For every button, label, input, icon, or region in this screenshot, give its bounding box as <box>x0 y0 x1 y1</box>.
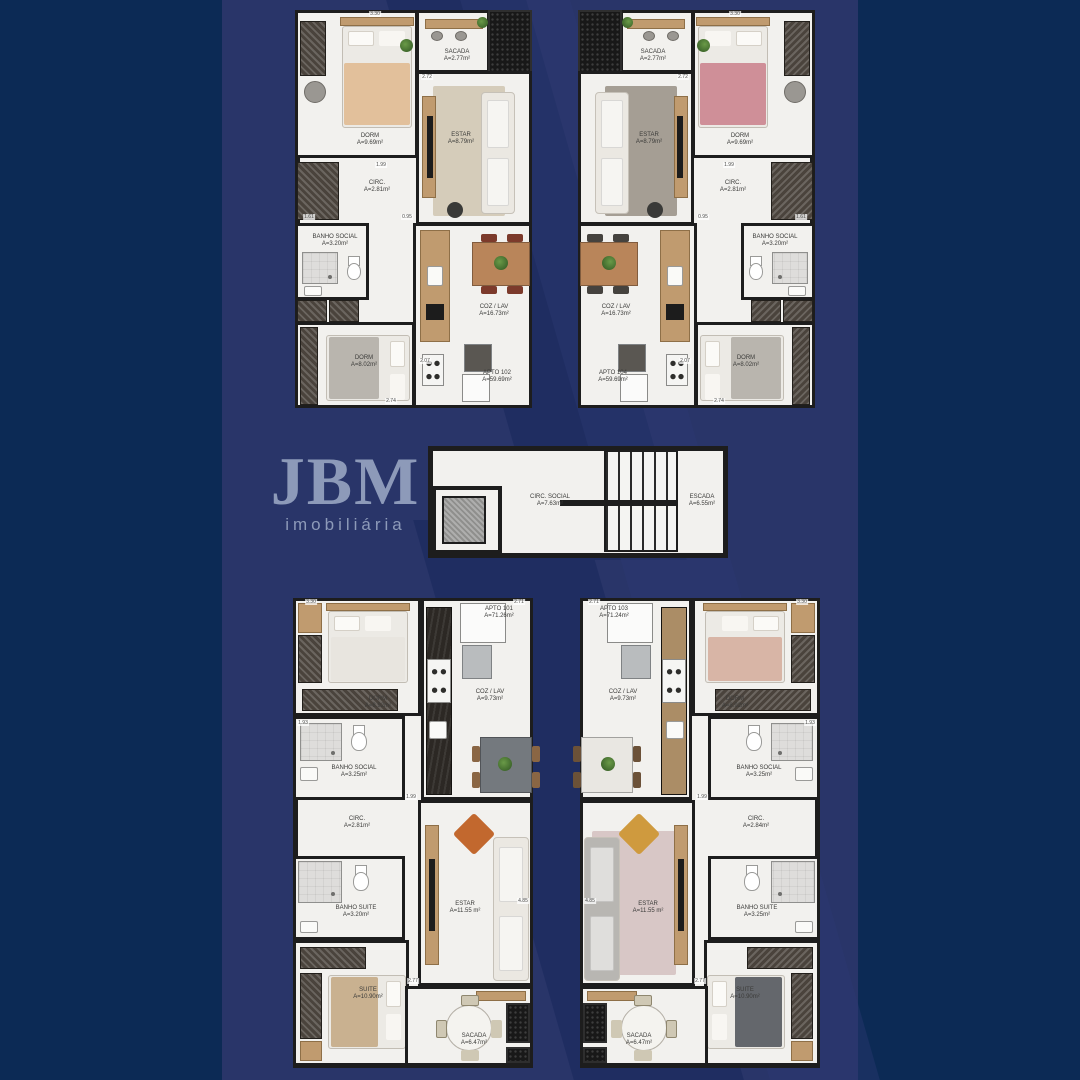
dimension: 2.74 <box>385 398 397 404</box>
floorplan-top-right: DORMA=9.69m² SACADAA=2.77m² <box>578 10 815 408</box>
room-label: ESTARA=11.55 m² <box>450 901 481 915</box>
dimension: 3.30 <box>729 11 741 17</box>
dimension: 0.95 <box>697 214 709 220</box>
room-label: DORMA=8.92m² <box>365 696 391 710</box>
plant <box>498 757 512 771</box>
plant <box>602 256 616 270</box>
tv <box>427 116 433 178</box>
dresser <box>791 1041 813 1061</box>
room-estar: ESTARA=8.79m² <box>578 71 694 225</box>
core-layout: CIRC. SOCIALA=7.63m² ESCADAA=6.55m² <box>428 446 728 558</box>
room-banho-suite: BANHO SUITEA=3.20m² <box>293 856 405 940</box>
wardrobe <box>784 21 810 76</box>
sofa <box>595 92 629 214</box>
cooktop <box>426 304 444 320</box>
dimension: 1.99 <box>723 162 735 168</box>
sofa <box>481 92 515 214</box>
room-label: SACADAA=6.47m² <box>461 1033 487 1047</box>
planter-box <box>506 1047 530 1063</box>
plant <box>477 17 488 28</box>
floorplan-top-left: DORMA=9.69m² SACADAA=2.77m² <box>295 10 532 408</box>
counter <box>621 645 651 679</box>
room-estar: ESTARA=11.55 m² <box>418 800 533 986</box>
room-label: COZ / LAVA=9.73m² <box>609 689 638 703</box>
shower <box>302 252 338 284</box>
toilet <box>748 256 764 280</box>
stool <box>667 31 679 41</box>
armchair <box>304 81 326 103</box>
dimension: 1.93 <box>297 720 309 726</box>
tv <box>429 859 435 931</box>
room-label: BANHO SUITEA=3.25m² <box>737 905 778 919</box>
kitchen-sink <box>666 721 684 739</box>
dimension: 2.07 <box>419 358 431 364</box>
toilet <box>745 725 763 751</box>
counter-dark <box>618 344 646 372</box>
sink <box>304 286 322 296</box>
dimension: 2.71 <box>513 599 525 605</box>
sink <box>788 286 806 296</box>
planter-box <box>583 1047 607 1063</box>
apt-layout: DORMA=8.92m² COZ / LAVA=9.73m² <box>293 598 533 1068</box>
dimension: 3.30 <box>305 599 317 605</box>
brand-name: JBM <box>258 452 433 510</box>
wardrobe <box>751 300 781 322</box>
dimension: 1.61 <box>795 214 807 220</box>
dimension: 2.07 <box>679 358 691 364</box>
room-label: ESTARA=8.79m² <box>448 132 474 146</box>
dimension: 2.72 <box>421 74 433 80</box>
room-sacada: SACADAA=6.47m² <box>405 986 533 1066</box>
stove <box>662 659 686 703</box>
sink <box>795 767 813 781</box>
corner-cabinet <box>298 603 322 633</box>
toilet <box>743 865 761 891</box>
stool <box>455 31 467 41</box>
wardrobe <box>300 973 322 1039</box>
kitchen-counter <box>420 230 450 342</box>
stool <box>643 31 655 41</box>
room-label: SUITEA=10.90m² <box>353 987 383 1001</box>
room-dorm: DORMA=8.92m² <box>293 598 421 716</box>
room-label: BANHO SOCIALA=3.25m² <box>736 765 781 779</box>
wardrobe <box>791 635 815 683</box>
room-label: SACADAA=2.77m² <box>444 49 470 63</box>
room-label-circ: CIRC.A=2.84m² <box>743 816 769 830</box>
wardrobe <box>300 327 318 405</box>
shower <box>771 861 815 903</box>
double-bed <box>705 611 785 683</box>
room-label: DORMA=8.92m² <box>722 696 748 710</box>
dimension: 4.85 <box>584 898 596 904</box>
room-label: DORMA=8.02m² <box>351 355 377 369</box>
kitchen-sink <box>429 721 447 739</box>
wardrobe <box>747 947 813 969</box>
wardrobe <box>329 300 359 322</box>
poster-canvas: JBM imobiliária DORMA=9.69m² <box>0 0 1080 1080</box>
toilet <box>352 865 370 891</box>
coffee-table <box>647 202 663 218</box>
dimension: 1.93 <box>804 720 816 726</box>
plant <box>697 39 710 52</box>
room-label-circ: CIRC.A=2.81m² <box>720 180 746 194</box>
room-banho-social: BANHO SOCIALA=3.25m² <box>708 716 820 800</box>
room-label: COZ / LAVA=16.73m² <box>601 304 631 318</box>
room-label: ESTARA=11.55 m² <box>633 901 664 915</box>
utility-box <box>578 10 622 73</box>
sink <box>300 921 318 933</box>
room-label: DORMA=9.69m² <box>727 133 753 147</box>
room-label-circ: CIRC.A=2.81m² <box>344 816 370 830</box>
room-coz-lav: COZ / LAVA=16.73m² <box>578 223 697 408</box>
shower <box>772 252 808 284</box>
wardrobe <box>300 947 366 969</box>
balcony-shelf <box>587 991 637 1001</box>
room-dorm-2: DORMA=8.02m² <box>295 322 415 408</box>
apt-layout: DORMA=8.92m² COZ / LAVA=9.73m² <box>580 598 820 1068</box>
pouf <box>453 813 495 855</box>
dimension: 0.95 <box>401 214 413 220</box>
dimension: 1.61 <box>303 214 315 220</box>
room-dorm-1: DORMA=9.69m² <box>295 10 418 158</box>
counter-dark <box>464 344 492 372</box>
dimension: 3.30 <box>369 11 381 17</box>
stove <box>427 659 451 703</box>
toilet <box>350 725 368 751</box>
coffee-table <box>447 202 463 218</box>
room-label-escada: ESCADAA=6.55m² <box>689 494 715 508</box>
wardrobe <box>771 162 813 220</box>
bed-headboard <box>703 603 787 611</box>
dimension: 1.99 <box>696 794 708 800</box>
room-label: BANHO SOCIALA=3.25m² <box>331 765 376 779</box>
cooktop <box>666 304 684 320</box>
unit-label: APTO 101A=71.26m² <box>484 606 514 620</box>
plant <box>400 39 413 52</box>
wardrobe <box>300 21 326 76</box>
room-label-circ-social: CIRC. SOCIALA=7.63m² <box>530 494 570 508</box>
dimension: 1.99 <box>405 794 417 800</box>
dimension: 1.99 <box>375 162 387 168</box>
brand-logo: JBM imobiliária <box>258 452 433 535</box>
wardrobe <box>297 162 339 220</box>
room-banho-social: BANHO SOCIALA=3.20m² <box>295 223 369 300</box>
wardrobe <box>792 327 810 405</box>
dimension: 2.77 <box>694 978 706 984</box>
room-label: DORMA=9.69m² <box>357 133 383 147</box>
stairs-handrail <box>560 500 678 506</box>
room-label-circ: CIRC.A=2.81m² <box>364 180 390 194</box>
elevator-car <box>442 496 486 544</box>
room-label: ESTARA=8.79m² <box>636 132 662 146</box>
room-sacada: SACADAA=6.47m² <box>580 986 708 1066</box>
dimension: 2.74 <box>713 398 725 404</box>
unit-label: APTO 102A=59.69m² <box>482 370 512 384</box>
room-dorm-1: DORMA=9.69m² <box>692 10 815 158</box>
utility-box <box>488 10 532 73</box>
room-suite: SUITEA=10.90m² <box>293 940 409 1066</box>
sofa <box>493 837 529 981</box>
room-label: BANHO SOCIALA=3.20m² <box>752 234 797 248</box>
room-estar: ESTARA=8.79m² <box>416 71 532 225</box>
room-sacada: SACADAA=2.77m² <box>416 10 490 73</box>
room-estar: ESTARA=11.55 m² <box>580 800 695 986</box>
double-bed <box>328 611 408 683</box>
dimension: 4.85 <box>517 898 529 904</box>
apt-layout: DORMA=9.69m² SACADAA=2.77m² <box>578 10 815 408</box>
room-banho-social: BANHO SOCIALA=3.20m² <box>741 223 815 300</box>
room-label: BANHO SOCIALA=3.20m² <box>312 234 357 248</box>
plant <box>601 757 615 771</box>
tv <box>677 116 683 178</box>
apt-layout: DORMA=9.69m² SACADAA=2.77m² <box>295 10 532 408</box>
planter-box <box>506 1003 530 1043</box>
plant <box>622 17 633 28</box>
dimension: 2.71 <box>588 599 600 605</box>
counter <box>462 645 492 679</box>
room-suite: SUITEA=10.90m² <box>704 940 820 1066</box>
balcony-shelf <box>476 991 526 1001</box>
planter-box <box>583 1003 607 1043</box>
dimension: 3.30 <box>796 599 808 605</box>
floorplan-bottom-right: DORMA=8.92m² COZ / LAVA=9.73m² <box>580 598 820 1068</box>
kitchen-counter <box>660 230 690 342</box>
room-banho-suite: BANHO SUITEA=3.25m² <box>708 856 820 940</box>
balcony-console <box>627 19 685 29</box>
balcony-console <box>425 19 483 29</box>
room-sacada: SACADAA=2.77m² <box>620 10 694 73</box>
shower <box>298 861 342 903</box>
room-coz-lav: COZ / LAVA=9.73m² <box>421 598 533 800</box>
wardrobe <box>783 300 813 322</box>
sink <box>300 767 318 781</box>
armchair <box>784 81 806 103</box>
stool <box>431 31 443 41</box>
building-core: CIRC. SOCIALA=7.63m² ESCADAA=6.55m² <box>428 446 728 558</box>
bed-headboard <box>696 17 770 26</box>
bed-headboard <box>326 603 410 611</box>
shower <box>300 723 342 761</box>
room-label: COZ / LAVA=16.73m² <box>479 304 509 318</box>
room-banho-social: BANHO SOCIALA=3.25m² <box>293 716 405 800</box>
toilet <box>346 256 362 280</box>
room-label: SACADAA=6.47m² <box>626 1033 652 1047</box>
room-dorm-2: DORMA=8.02m² <box>695 322 815 408</box>
room-label: COZ / LAVA=9.73m² <box>476 689 505 703</box>
kitchen-sink <box>667 266 683 286</box>
sink <box>795 921 813 933</box>
kitchen-sink <box>427 266 443 286</box>
dimension: 2.72 <box>677 74 689 80</box>
unit-label: APTO 103A=71.24m² <box>599 606 629 620</box>
bed-headboard <box>340 17 414 26</box>
dimension: 2.77 <box>407 978 419 984</box>
wardrobe <box>297 300 327 322</box>
elevator-shaft <box>432 486 502 554</box>
wardrobe <box>791 973 813 1039</box>
room-dorm: DORMA=8.92m² <box>692 598 820 716</box>
room-coz-lav: COZ / LAVA=9.73m² <box>580 598 692 800</box>
room-label: SUITEA=10.90m² <box>730 987 760 1001</box>
floorplan-bottom-left: DORMA=8.92m² COZ / LAVA=9.73m² <box>293 598 533 1068</box>
room-coz-lav: COZ / LAVA=16.73m² <box>413 223 532 408</box>
room-label: BANHO SUITEA=3.20m² <box>336 905 377 919</box>
sofa <box>584 837 620 981</box>
dresser <box>300 1041 322 1061</box>
room-label: DORMA=8.02m² <box>733 355 759 369</box>
room-label: SACADAA=2.77m² <box>640 49 666 63</box>
wardrobe <box>298 635 322 683</box>
corner-cabinet <box>791 603 815 633</box>
unit-label: APTO 104A=59.69m² <box>598 370 628 384</box>
shower <box>771 723 813 761</box>
plant <box>494 256 508 270</box>
tv <box>678 859 684 931</box>
